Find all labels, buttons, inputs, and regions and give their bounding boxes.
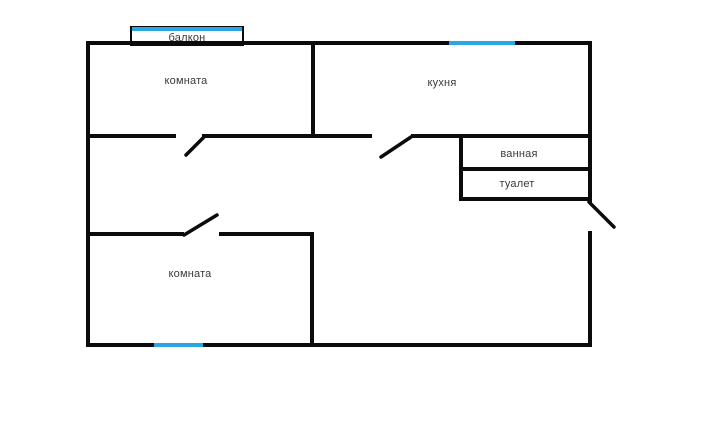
label-room-top: комната — [165, 75, 208, 87]
label-toilet: туалет — [499, 178, 534, 190]
floor-plan-drawing — [0, 0, 725, 438]
label-room-bottom: комната — [169, 268, 212, 280]
label-kitchen: кухня — [428, 77, 457, 89]
door-leaf-room-bottom — [184, 215, 217, 235]
label-balcony: балкон — [169, 32, 206, 44]
floor-plan: балкон комната кухня ванная туалет комна… — [0, 0, 725, 438]
label-bathroom: ванная — [500, 148, 537, 160]
door-leaf-kitchen — [381, 137, 411, 157]
door-leaf-entry — [589, 202, 614, 227]
door-leaf-room-top — [186, 137, 204, 155]
